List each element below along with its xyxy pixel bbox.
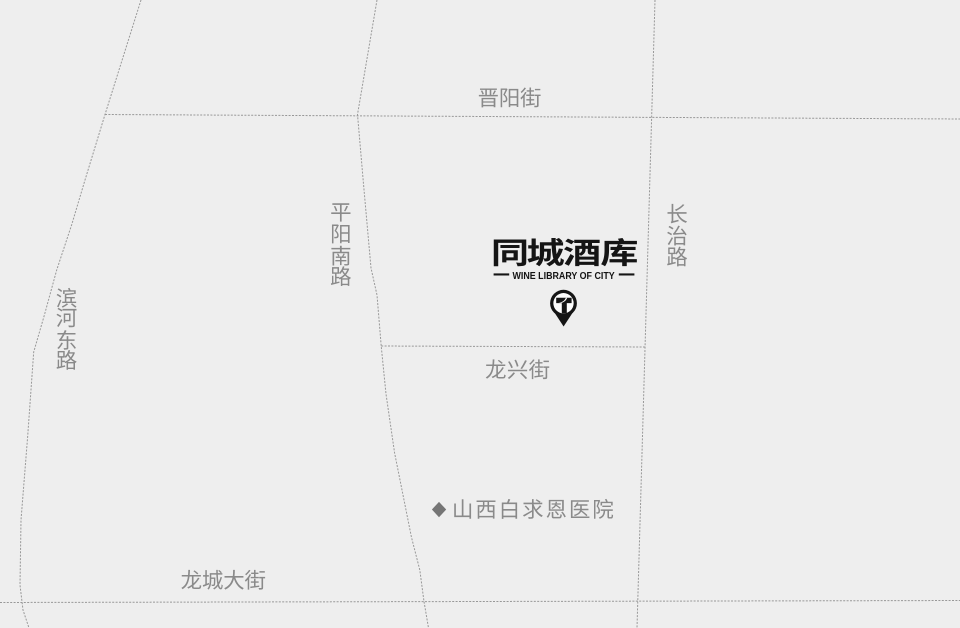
svg-text:WINE LIBRARY OF CITY: WINE LIBRARY OF CITY: [513, 271, 615, 282]
